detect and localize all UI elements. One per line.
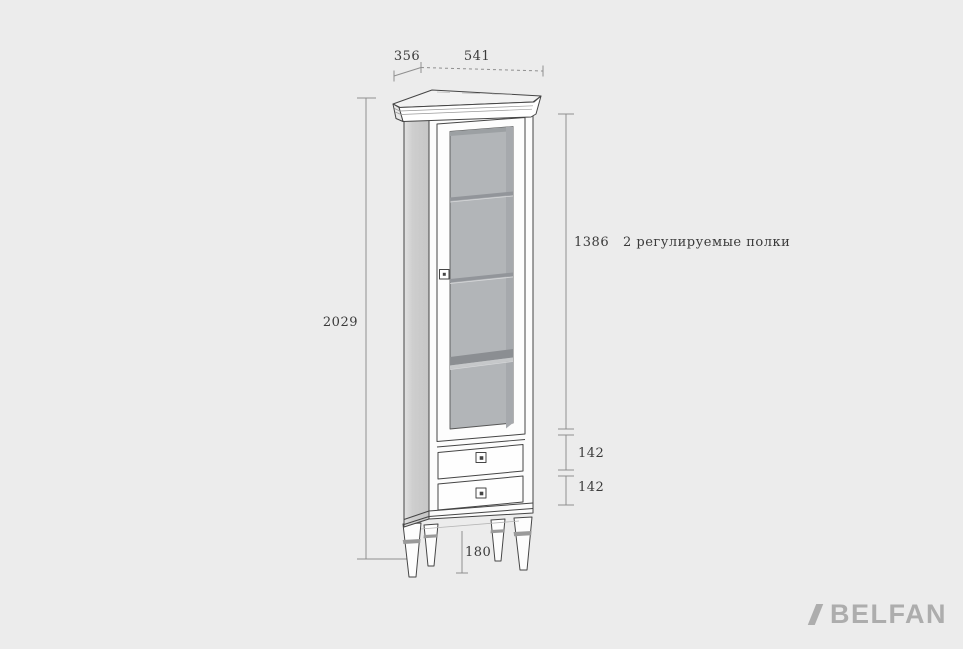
- drawer-lower-knob: [476, 488, 486, 498]
- shelves-note: 2 регулируемые полки: [623, 235, 790, 250]
- dim-label-width: 541: [460, 49, 494, 64]
- brand-name: BELFAN: [830, 601, 947, 628]
- leg-front-left: [403, 523, 421, 577]
- dim-label-depth: 356: [390, 49, 424, 64]
- brand-logo: BELFAN: [812, 601, 947, 628]
- leg-back-left: [424, 524, 438, 566]
- dim-line-width: [421, 68, 543, 72]
- dim-label-legs: 180: [465, 545, 491, 560]
- dim-line-depth: [394, 68, 421, 77]
- dim-label-glass-section: 1386: [574, 235, 609, 250]
- dim-label-lower-drawer: 142: [578, 480, 604, 495]
- leg-front-right: [514, 517, 532, 570]
- cabinet-side-panel: [404, 117, 429, 527]
- dim-label-upper-drawer: 142: [578, 446, 604, 461]
- cabinet: [393, 90, 541, 577]
- dim-label-total-height: 2029: [310, 315, 358, 330]
- door-knob: [440, 270, 450, 280]
- glass-door: [437, 118, 525, 448]
- page: 356 541 2029 1386 2 регулируемые полки 1…: [0, 0, 963, 649]
- drawer-upper-knob: [476, 453, 486, 463]
- cabinet-cornice: [393, 90, 541, 122]
- leg-back-right: [491, 519, 505, 561]
